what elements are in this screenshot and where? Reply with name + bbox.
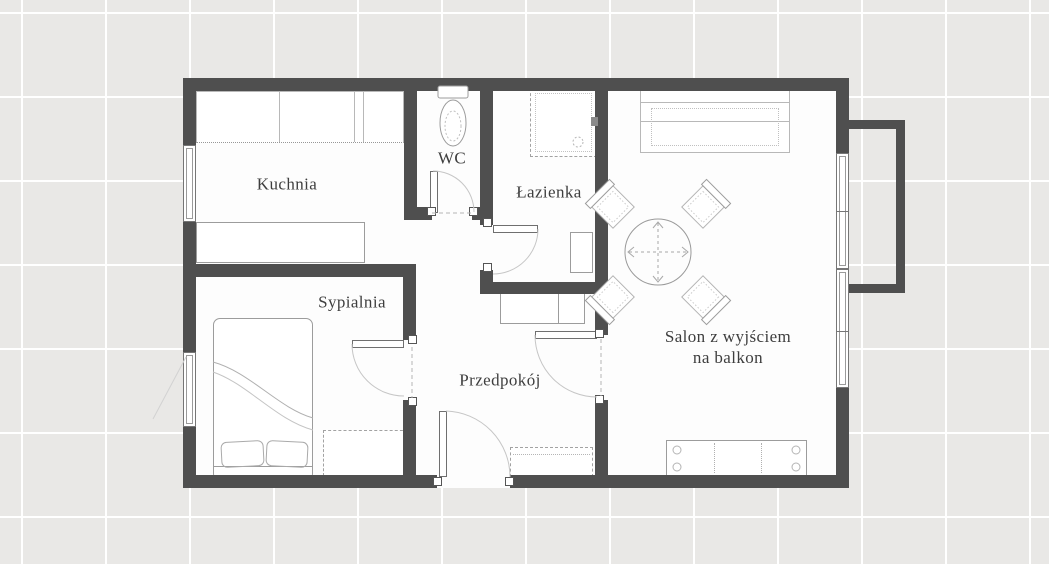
door-hinge	[427, 207, 436, 216]
hallway-cabinet	[500, 293, 585, 324]
door-hinge	[595, 395, 604, 404]
living-room-window	[836, 153, 849, 269]
open-window-sash-line	[153, 357, 186, 419]
room-label-kitchen: Kuchnia	[257, 173, 317, 194]
counter-divider	[363, 92, 364, 142]
room-label-hallway: Przedpokój	[459, 369, 540, 390]
wall-bedroom-top	[183, 264, 416, 277]
room-label-wc: WC	[438, 147, 466, 168]
wall-exterior-bottom	[183, 475, 849, 488]
balcony-door-window	[836, 269, 849, 388]
shower-tray	[535, 93, 592, 152]
washing-machine	[570, 232, 593, 273]
kitchen-island-counter	[196, 222, 365, 263]
room-label-bathroom: Łazienka	[516, 181, 582, 202]
door-hinge	[433, 477, 442, 486]
door-hinge	[483, 218, 492, 227]
shoe-cabinet	[510, 447, 593, 477]
living-room-label-line1: Salon z wyjściem	[665, 326, 791, 347]
shower	[530, 88, 597, 157]
cabinet-divider	[558, 294, 559, 323]
bed	[213, 318, 313, 477]
door-hinge	[408, 397, 417, 406]
door-hinge	[505, 477, 514, 486]
sideboard-divider	[761, 443, 762, 473]
door-hinge	[469, 207, 478, 216]
wall-wc-bathroom	[480, 91, 493, 225]
sofa	[640, 90, 790, 153]
balcony-wall-bottom	[845, 284, 905, 293]
room-label-living-room: Salon z wyjściem na balkon	[665, 326, 791, 369]
bedroom-wardrobe	[323, 430, 408, 476]
floor-plan-canvas: Kuchnia WC Łazienka Sypialnia Przedpokój…	[0, 0, 1049, 564]
wall-bedroom-right-lower	[403, 400, 416, 475]
counter-divider	[279, 92, 280, 142]
door-hinge	[595, 329, 604, 338]
living-room-door-leaf	[535, 331, 597, 339]
pillow	[220, 440, 264, 468]
room-label-bedroom: Sypialnia	[318, 291, 386, 312]
shoe-cabinet-detail	[513, 450, 590, 455]
wall-bedroom-right-upper	[403, 264, 416, 340]
balcony-wall-right	[896, 120, 905, 293]
counter-divider	[354, 92, 355, 142]
pillow	[265, 440, 308, 468]
kitchen-counter	[196, 91, 404, 143]
wall-living-west-lower	[595, 400, 608, 475]
bedroom-door-leaf	[352, 340, 404, 348]
door-hinge	[408, 335, 417, 344]
bathroom-door-leaf	[493, 225, 538, 233]
entrance-opening	[437, 475, 510, 488]
wall-living-west-upper	[595, 91, 608, 335]
door-hinge	[483, 263, 492, 272]
sofa-back-line	[641, 102, 789, 103]
wall-exterior-top	[183, 78, 849, 91]
wall-bathroom-bottom	[480, 282, 608, 294]
kitchen-window	[183, 145, 196, 222]
sideboard-divider	[714, 443, 715, 473]
sofa-cushion	[651, 108, 779, 146]
entrance-door-leaf	[439, 411, 447, 477]
sideboard	[666, 440, 807, 476]
bedroom-window	[183, 352, 196, 427]
living-room-label-line2: na balkon	[665, 347, 791, 368]
wall-kitchen-wc	[404, 91, 417, 220]
